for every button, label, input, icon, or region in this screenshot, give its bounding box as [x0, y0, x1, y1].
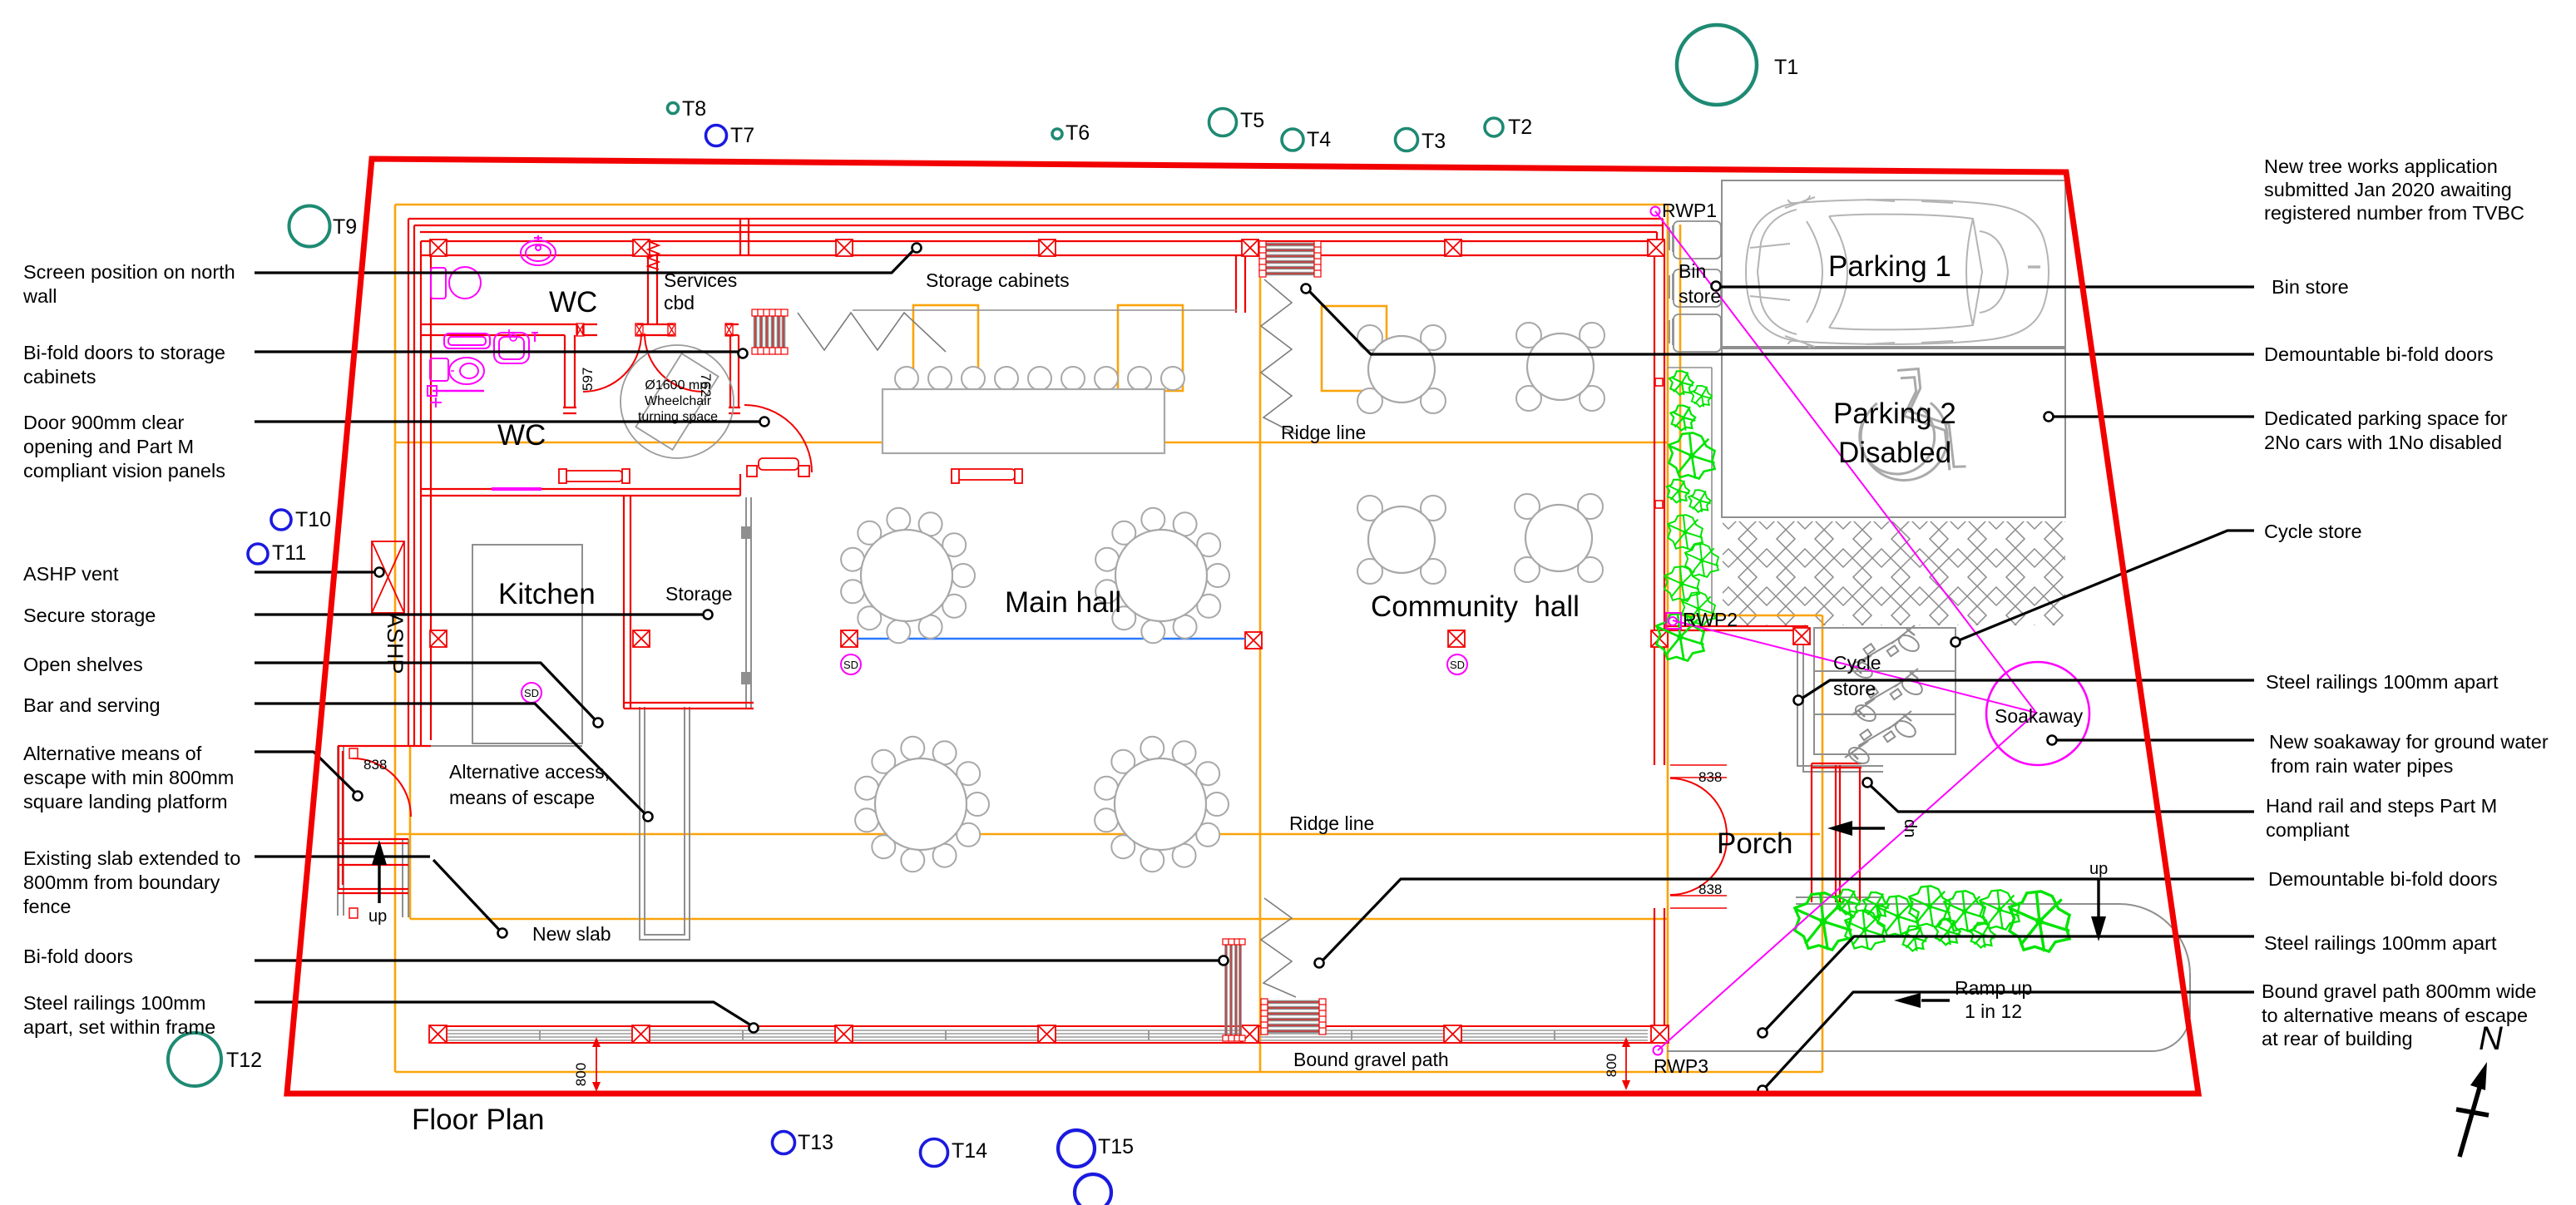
svg-text:838: 838 [1698, 769, 1722, 785]
svg-text:1 in 12: 1 in 12 [1965, 1000, 2022, 1022]
svg-text:means of escape: means of escape [449, 787, 595, 808]
svg-text:Storage: Storage [665, 583, 733, 605]
svg-text:N: N [2479, 1020, 2503, 1057]
svg-text:Cycle store: Cycle store [2264, 521, 2362, 542]
svg-text:800mm from boundary: 800mm from boundary [23, 872, 220, 893]
svg-text:Floor Plan: Floor Plan [412, 1104, 545, 1136]
svg-text:Porch: Porch [1717, 827, 1792, 860]
svg-text:Door 900mm clear: Door 900mm clear [23, 412, 184, 433]
svg-text:SD: SD [1450, 659, 1465, 671]
svg-text:ASHP: ASHP [383, 613, 408, 674]
svg-text:Parking 2: Parking 2 [1833, 398, 1956, 430]
svg-text:Secure storage: Secure storage [23, 605, 156, 626]
svg-text:Dedicated parking space for: Dedicated parking space for [2264, 407, 2508, 429]
svg-text:New tree works application: New tree works application [2264, 156, 2498, 177]
svg-text:RWP1: RWP1 [1662, 200, 1717, 221]
svg-text:compliant vision panels: compliant vision panels [23, 460, 225, 482]
svg-text:Existing slab extended to: Existing slab extended to [23, 847, 240, 869]
svg-text:Ø1600 mm: Ø1600 mm [645, 378, 710, 393]
svg-text:Ramp up: Ramp up [1955, 977, 2032, 999]
svg-text:Ridge line: Ridge line [1289, 812, 1374, 834]
svg-text:SD: SD [524, 687, 539, 699]
svg-text:T14: T14 [952, 1139, 987, 1163]
svg-text:T13: T13 [798, 1131, 833, 1154]
svg-text:T2: T2 [1508, 116, 1532, 139]
svg-text:Steel railings 100mm apart: Steel railings 100mm apart [2266, 671, 2499, 693]
svg-text:Screen position on north: Screen position on north [23, 261, 235, 283]
svg-text:opening and Part M: opening and Part M [23, 436, 194, 457]
svg-text:wall: wall [22, 285, 57, 307]
svg-text:Wheelchair: Wheelchair [645, 394, 712, 408]
svg-text:Bound gravel path: Bound gravel path [1293, 1049, 1449, 1070]
svg-text:at rear of building: at rear of building [2262, 1028, 2413, 1049]
svg-text:New soakaway for ground water: New soakaway for ground water [2269, 731, 2549, 753]
svg-text:T12: T12 [226, 1049, 262, 1072]
svg-text:T15: T15 [1098, 1135, 1134, 1158]
svg-text:from rain water pipes: from rain water pipes [2271, 755, 2453, 777]
svg-text:Demountable bi-fold doors: Demountable bi-fold doors [2268, 868, 2498, 890]
svg-text:submitted Jan 2020 awaiting: submitted Jan 2020 awaiting [2264, 179, 2512, 200]
svg-text:Bin: Bin [1679, 260, 1706, 282]
svg-text:Bound gravel path 800mm wide: Bound gravel path 800mm wide [2262, 980, 2537, 1002]
svg-text:Bin store: Bin store [2272, 276, 2349, 298]
svg-text:Demountable bi-fold doors: Demountable bi-fold doors [2264, 343, 2494, 365]
svg-text:up: up [368, 907, 387, 926]
svg-text:T5: T5 [1240, 109, 1264, 132]
svg-text:Services: Services [664, 269, 737, 291]
svg-text:cabinets: cabinets [23, 366, 96, 388]
svg-text:Bi-fold doors to storage: Bi-fold doors to storage [23, 342, 225, 363]
svg-text:Disabled: Disabled [1838, 437, 1951, 469]
svg-text:RWP3: RWP3 [1654, 1055, 1708, 1077]
svg-text:registered number from TVBC: registered number from TVBC [2264, 202, 2524, 224]
svg-text:escape with min 800mm: escape with min 800mm [23, 767, 234, 788]
svg-text:Main hall: Main hall [1005, 586, 1121, 619]
svg-text:cbd: cbd [664, 292, 695, 314]
svg-text:SD: SD [843, 659, 858, 671]
svg-text:Open shelves: Open shelves [23, 654, 143, 675]
svg-text:store: store [1679, 285, 1721, 307]
svg-text:apart, set within frame: apart, set within frame [23, 1016, 215, 1038]
svg-text:800: 800 [573, 1063, 589, 1086]
svg-text:T4: T4 [1307, 128, 1331, 151]
svg-text:RWP2: RWP2 [1683, 609, 1738, 630]
svg-text:ASHP vent: ASHP vent [23, 563, 119, 585]
svg-text:Cycle: Cycle [1833, 652, 1881, 674]
svg-text:fence: fence [23, 896, 72, 917]
svg-text:597: 597 [580, 368, 596, 391]
svg-text:T1: T1 [1774, 56, 1798, 79]
svg-text:Soakaway: Soakaway [1995, 705, 2084, 727]
svg-text:Parking 1: Parking 1 [1828, 250, 1951, 283]
svg-text:up: up [2089, 860, 2108, 878]
svg-text:Hand rail and steps Part M: Hand rail and steps Part M [2266, 795, 2497, 817]
svg-text:New slab: New slab [532, 923, 611, 945]
svg-text:Community hall: Community hall [1371, 590, 1580, 623]
svg-text:Bi-fold doors: Bi-fold doors [23, 946, 133, 967]
svg-text:T3: T3 [1421, 130, 1446, 153]
svg-text:T8: T8 [682, 97, 706, 121]
svg-text:Alternative means of: Alternative means of [23, 743, 202, 764]
svg-text:Steel railings 100mm: Steel railings 100mm [23, 992, 205, 1014]
svg-text:compliant: compliant [2266, 819, 2350, 841]
svg-text:Storage cabinets: Storage cabinets [926, 269, 1070, 291]
svg-text:store: store [1833, 678, 1876, 699]
svg-text:square landing platform: square landing platform [23, 791, 228, 812]
svg-text:Alternative access,: Alternative access, [449, 761, 610, 783]
svg-text:T10: T10 [295, 508, 331, 531]
svg-text:WC: WC [497, 419, 546, 452]
svg-text:838: 838 [363, 757, 387, 773]
svg-text:T11: T11 [272, 541, 306, 565]
svg-text:T6: T6 [1066, 121, 1090, 145]
svg-text:Ridge line: Ridge line [1281, 422, 1366, 443]
svg-text:Bar and serving: Bar and serving [23, 694, 161, 716]
svg-text:dn: dn [1901, 819, 1919, 837]
svg-text:838: 838 [1698, 882, 1722, 897]
svg-text:Kitchen: Kitchen [498, 578, 596, 610]
svg-text:T7: T7 [730, 124, 754, 147]
svg-text:turning space: turning space [638, 410, 718, 424]
svg-text:WC: WC [549, 286, 597, 319]
svg-text:T9: T9 [333, 215, 357, 239]
svg-text:800: 800 [1604, 1054, 1619, 1077]
svg-text:2No cars with 1No disabled: 2No cars with 1No disabled [2264, 432, 2502, 453]
svg-text:Steel railings 100mm apart: Steel railings 100mm apart [2264, 932, 2497, 954]
